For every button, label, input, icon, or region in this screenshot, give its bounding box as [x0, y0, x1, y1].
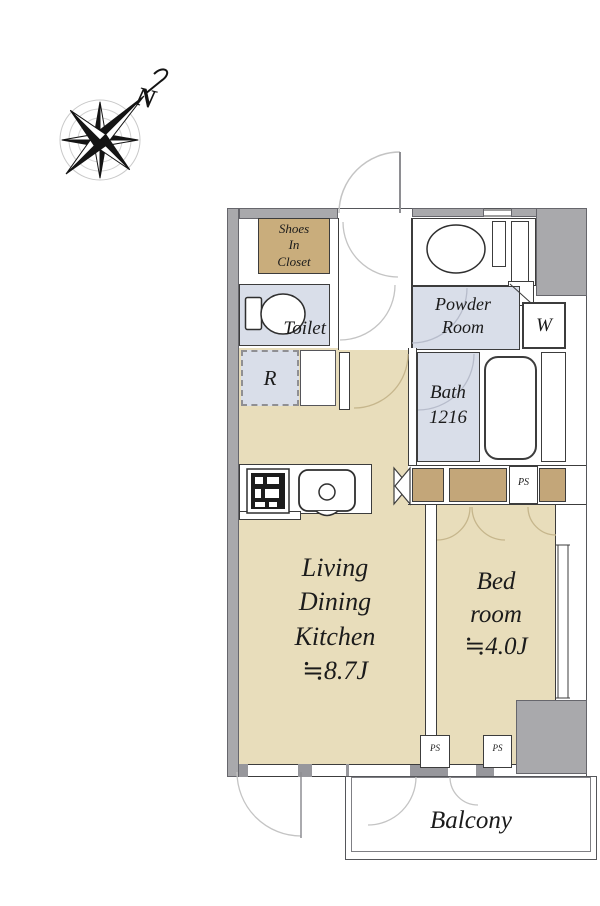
- kitchen-storage: [300, 350, 336, 406]
- wall-top-mid: [412, 208, 484, 217]
- kitchen-counter: [239, 464, 372, 514]
- ldk-label: Living Dining Kitchen ≒8.7J: [250, 551, 420, 688]
- north-flourish: [145, 69, 167, 94]
- ldk-bottom-window: [239, 764, 349, 777]
- column-bottom-right: [516, 700, 587, 774]
- wall-block: [412, 468, 444, 502]
- door-leaf: [339, 352, 350, 410]
- refrigerator-space: R: [241, 350, 299, 406]
- floor-plan-page: { "compass": { "north_label": "N" }, "la…: [0, 0, 600, 906]
- bath-side-strip: [541, 352, 566, 462]
- entrance-door-arc: [339, 152, 400, 213]
- balcony-label: Balcony: [345, 805, 597, 838]
- toilet-label: Toilet: [252, 317, 326, 342]
- ps-label: PS: [484, 743, 511, 753]
- pipe-space-mid: PS: [509, 466, 538, 504]
- wall-block: [539, 468, 566, 502]
- window-swing-arc: [237, 772, 301, 836]
- wall-top-right: [511, 208, 538, 217]
- ps-label: PS: [510, 477, 537, 488]
- bedroom-label: Bed room ≒4.0J: [440, 566, 552, 664]
- bathtub: [484, 356, 537, 460]
- vanity-cabinet: [492, 221, 506, 267]
- entrance-hall: [338, 218, 412, 350]
- wall-ldk-bedroom: [425, 505, 437, 766]
- powder-room-label: Powder Room: [412, 293, 514, 340]
- refrigerator-label: R: [243, 365, 297, 392]
- counter-shelf: [239, 511, 301, 520]
- window-jamb: [298, 764, 312, 777]
- washer-label: W: [524, 314, 564, 339]
- column-top-right: [536, 208, 587, 296]
- pipe-space-bottom-right: PS: [483, 735, 512, 768]
- washer-space: W: [522, 302, 566, 349]
- wall-hall-bath: [408, 348, 417, 466]
- wall-left: [227, 208, 239, 777]
- pipe-space-bottom-left: PS: [420, 735, 450, 768]
- north-label: N: [132, 80, 161, 114]
- compass-rose: N: [38, 60, 188, 195]
- wall-block: [449, 468, 507, 502]
- ps-label: PS: [421, 743, 449, 753]
- bath-label: Bath 1216: [417, 381, 479, 430]
- window-jamb: [239, 764, 248, 777]
- shoes-closet-label: Shoes In Closet: [258, 221, 330, 270]
